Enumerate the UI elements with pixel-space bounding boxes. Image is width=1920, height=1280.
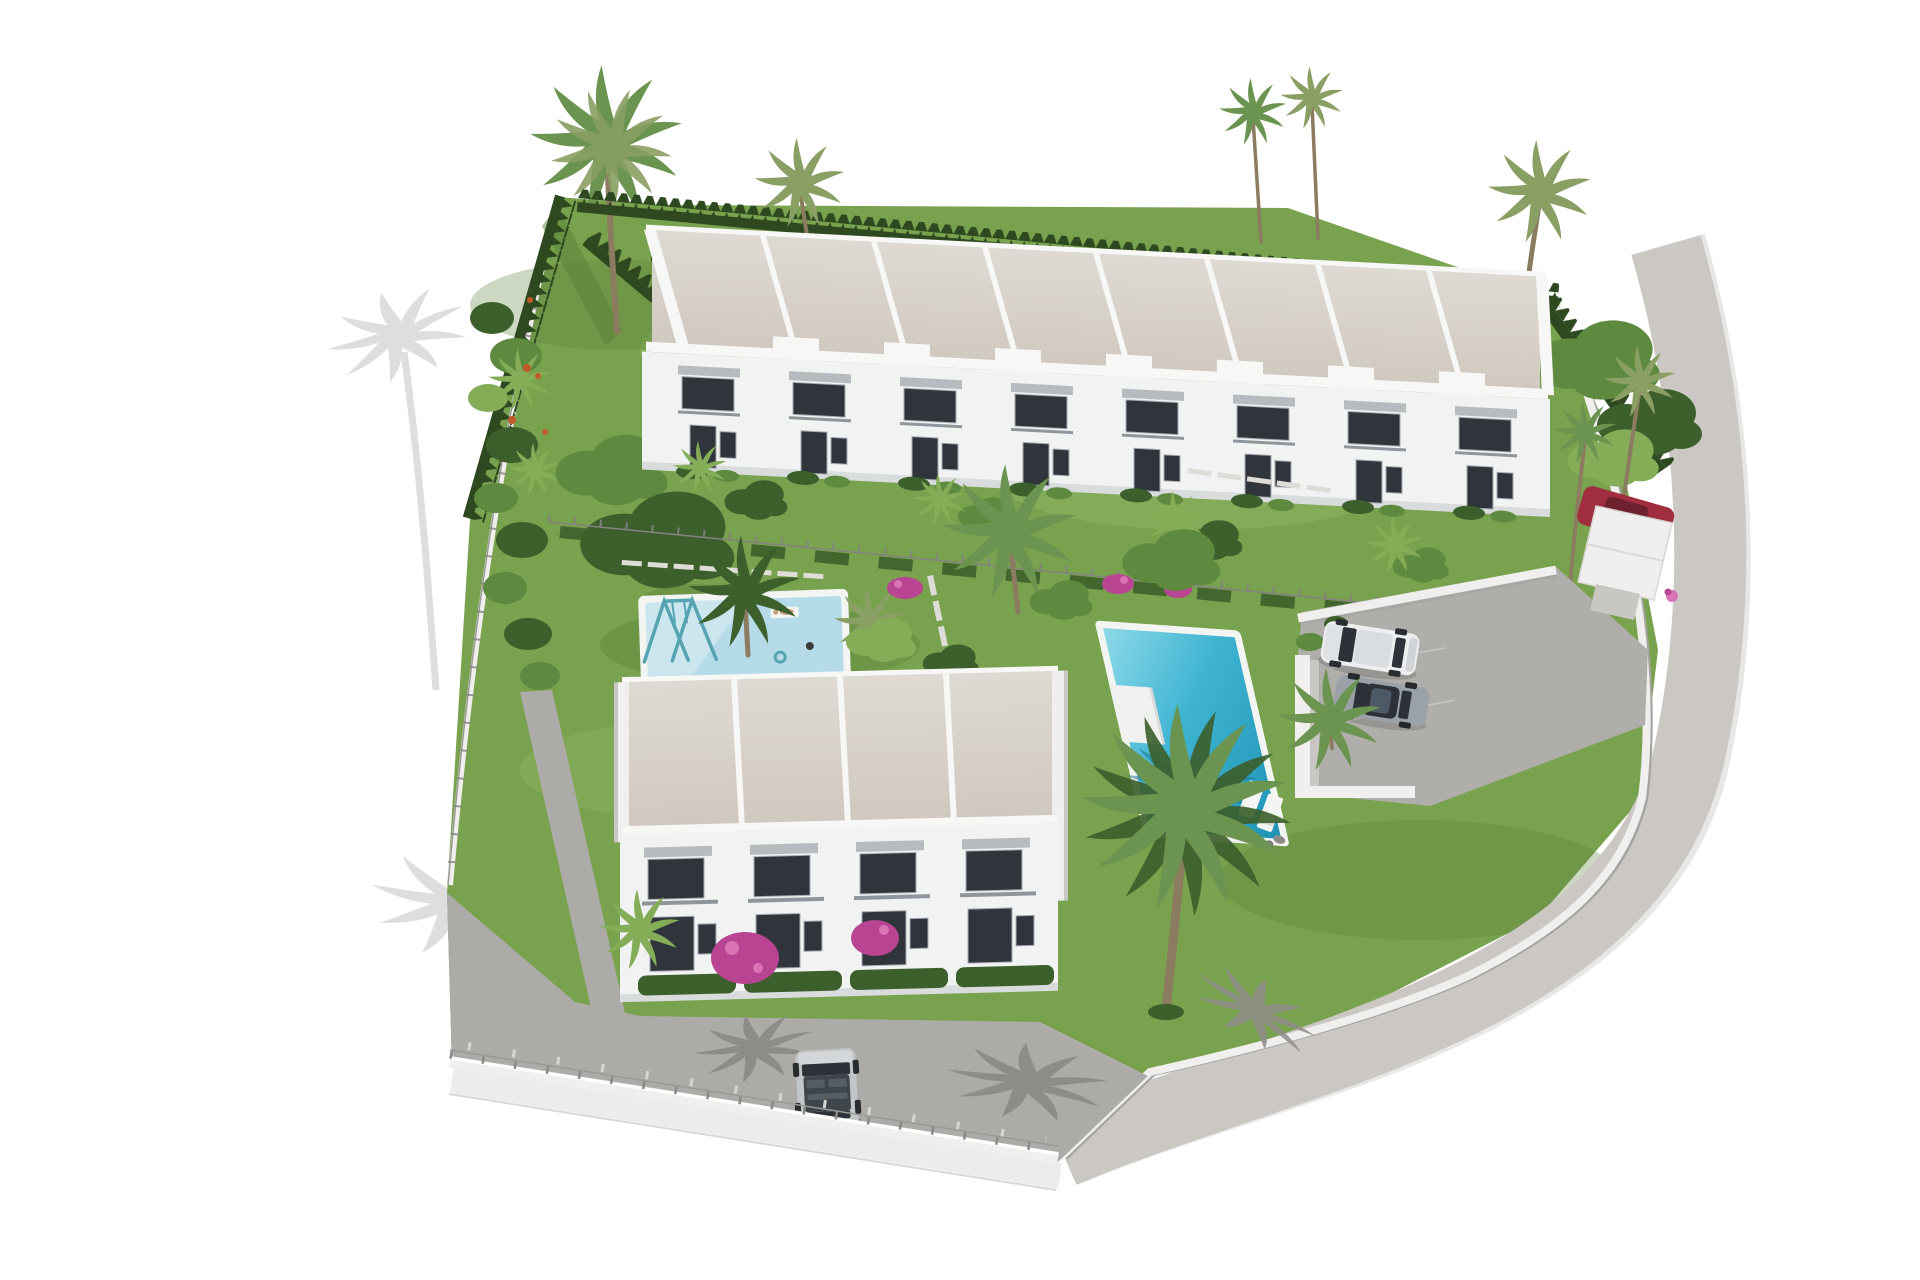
bougainvillea	[851, 920, 899, 956]
site-plan-render	[0, 0, 1920, 1280]
bush	[1296, 633, 1324, 651]
bottom-townhouse-block	[614, 665, 1068, 1002]
bougainvillea	[887, 577, 923, 599]
render-canvas	[0, 0, 1920, 1280]
bougainvillea	[1102, 574, 1134, 594]
orange-flowers	[523, 364, 531, 372]
bougainvillea-large	[711, 932, 779, 984]
